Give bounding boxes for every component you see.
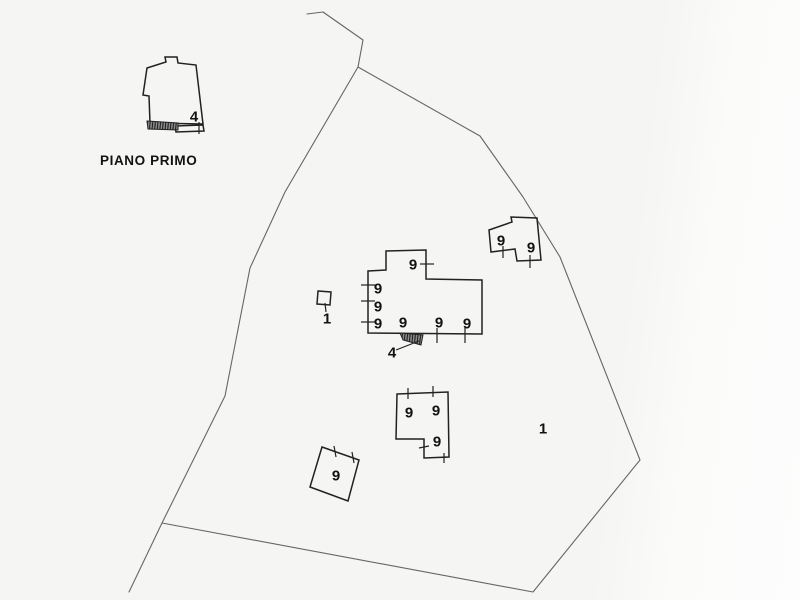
cadastral-plan-drawing: 49999999419999991PIANO PRIMO — [0, 0, 800, 600]
unit-label-9: 9 — [399, 314, 407, 331]
unit-label-1: 1 — [323, 310, 331, 327]
unit-label-9: 9 — [409, 256, 417, 273]
unit-label-9: 9 — [332, 467, 340, 484]
hatched-terrace-strip — [147, 121, 178, 130]
unit-label-9: 9 — [433, 433, 441, 450]
small-structure — [317, 291, 331, 305]
unit-label-9: 9 — [405, 404, 413, 421]
cadastral-plan-page: 49999999419999991PIANO PRIMO — [0, 0, 800, 600]
unit-label-9: 9 — [432, 402, 440, 419]
unit-label-4: 4 — [190, 108, 199, 125]
external-stairs — [400, 333, 423, 345]
leader-line-stairs — [396, 341, 419, 350]
building-first-floor-balcony — [175, 125, 204, 132]
unit-label-9: 9 — [374, 298, 382, 315]
unit-label-1: 1 — [539, 420, 547, 437]
unit-label-4: 4 — [388, 344, 397, 361]
parcel-boundary-west — [129, 12, 363, 592]
unit-label-9: 9 — [463, 315, 471, 332]
unit-label-9: 9 — [435, 314, 443, 331]
unit-label-9: 9 — [374, 315, 382, 332]
unit-label-9: 9 — [527, 239, 535, 256]
unit-label-9: 9 — [374, 280, 382, 297]
unit-label-9: 9 — [497, 232, 505, 249]
floor-title: PIANO PRIMO — [100, 153, 197, 168]
